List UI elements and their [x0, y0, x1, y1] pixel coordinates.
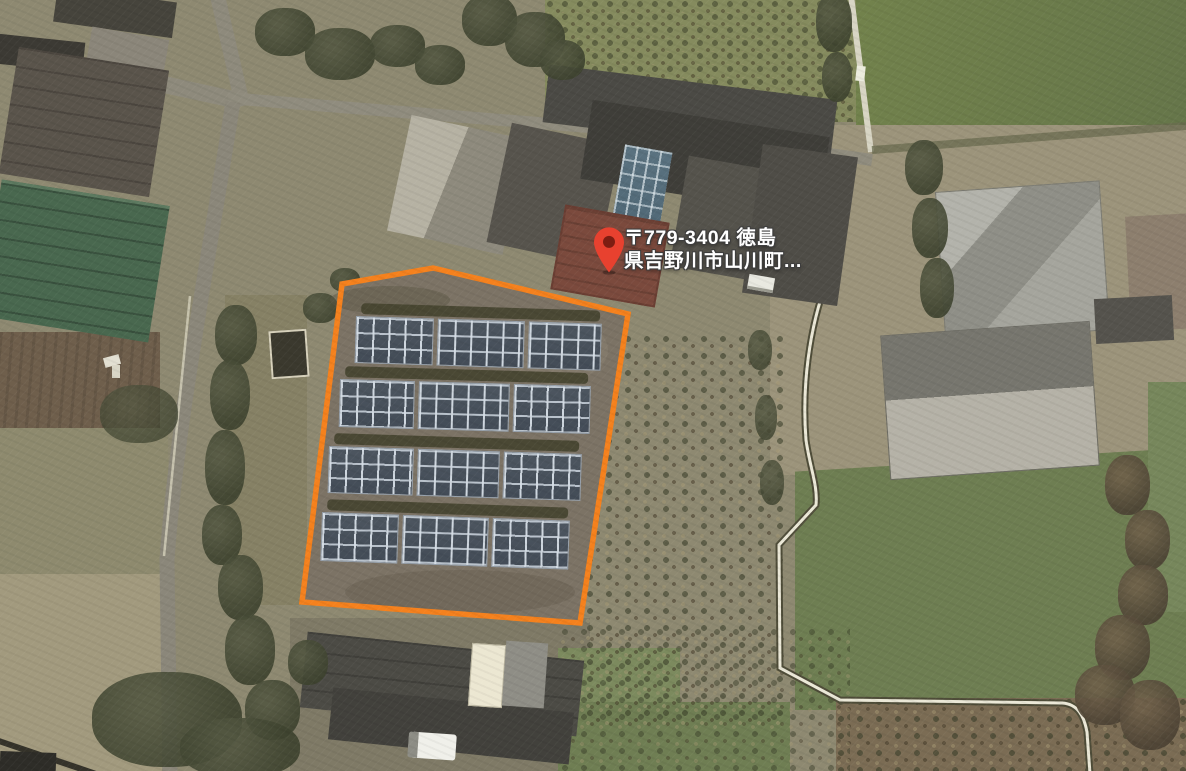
- address-label-line2: 県吉野川市山川町...: [624, 250, 802, 273]
- site-outline-polygon[interactable]: [302, 268, 628, 623]
- address-label: 〒779-3404 徳島 県吉野川市山川町...: [624, 227, 802, 273]
- map-pin-icon[interactable]: [594, 227, 624, 275]
- address-label-line1: 〒779-3404 徳島: [624, 227, 802, 250]
- satellite-map[interactable]: 〒779-3404 徳島 県吉野川市山川町...: [0, 0, 1186, 771]
- site-outline-layer: [0, 0, 1186, 771]
